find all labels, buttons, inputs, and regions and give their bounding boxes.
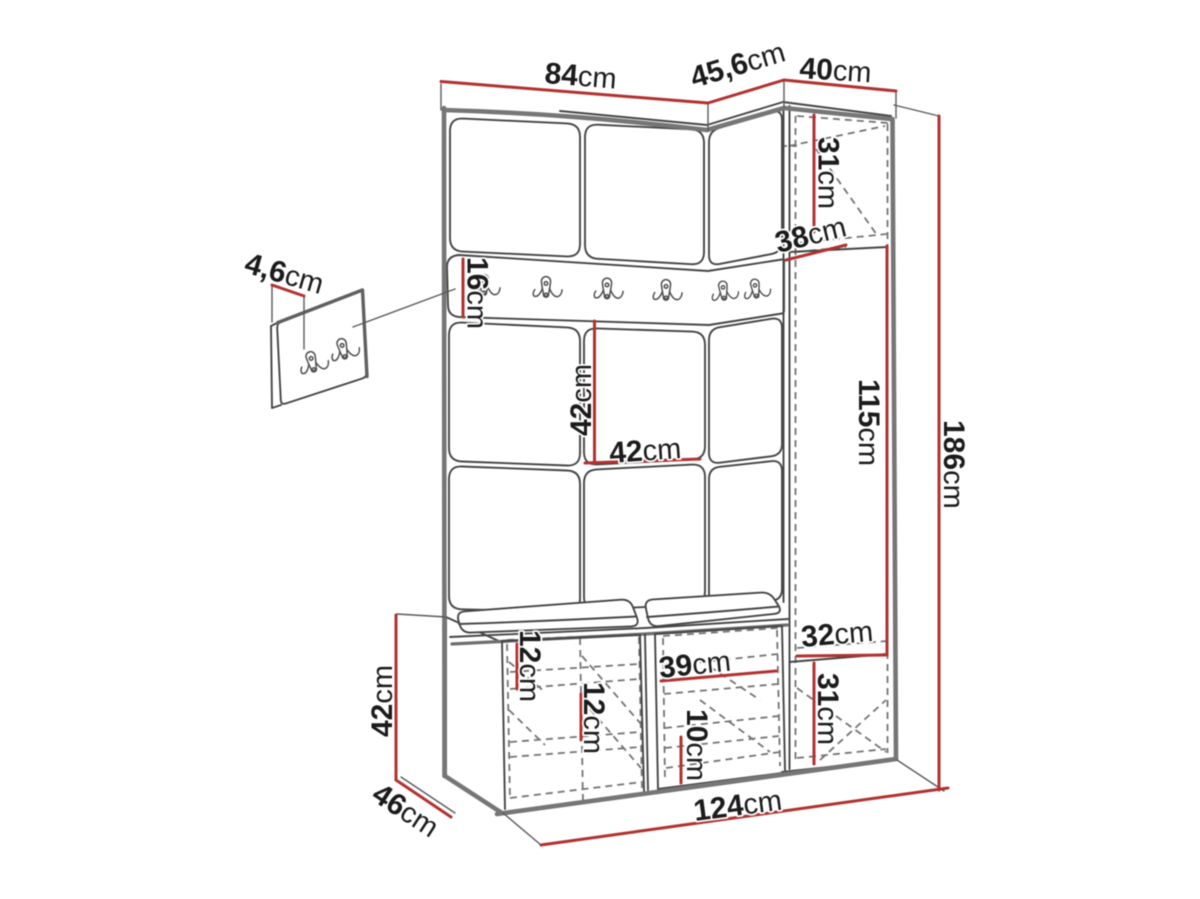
svg-text:12cm: 12cm: [513, 630, 546, 702]
svg-text:16cm: 16cm: [461, 257, 494, 329]
svg-text:42cm: 42cm: [608, 432, 682, 470]
svg-text:186cm: 186cm: [937, 420, 970, 509]
svg-text:32cm: 32cm: [800, 615, 875, 654]
svg-text:10cm: 10cm: [680, 709, 713, 781]
svg-text:115cm: 115cm: [852, 379, 885, 466]
svg-text:31cm: 31cm: [811, 673, 844, 745]
svg-text:31cm: 31cm: [812, 137, 845, 209]
svg-text:42cm: 42cm: [565, 364, 598, 436]
svg-text:12cm: 12cm: [577, 682, 610, 754]
svg-text:84cm: 84cm: [543, 57, 617, 96]
svg-text:42cm: 42cm: [366, 665, 399, 737]
svg-text:40cm: 40cm: [799, 52, 873, 89]
